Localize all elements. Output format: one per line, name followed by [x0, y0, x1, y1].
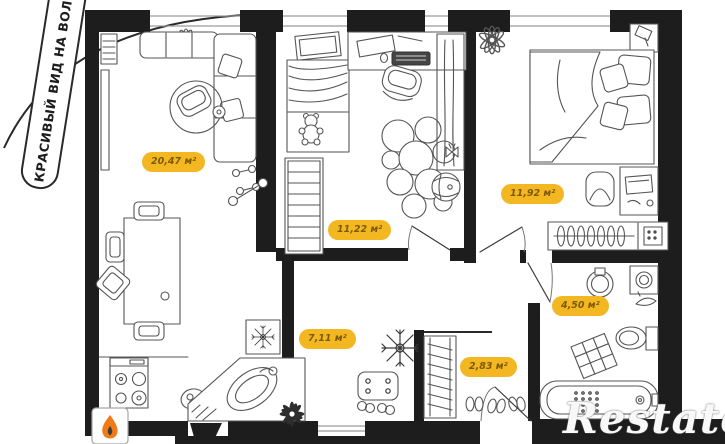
- room-area-badge-living: 20,47 м²: [142, 152, 205, 172]
- bean-bag: [382, 117, 455, 218]
- slippers: [466, 396, 526, 413]
- floor-plan: КРАСИВЫЙ ВИД НА ВОЛГУ 20,47 м² 11,22 м² …: [0, 0, 725, 444]
- houseplant-dark: [280, 402, 304, 426]
- vanity-table: [620, 167, 658, 215]
- toilet: [616, 327, 658, 350]
- nightstand-lamp: [630, 24, 658, 52]
- closet-furniture: [424, 336, 526, 418]
- bedroom-furniture: [478, 24, 668, 250]
- shoes: [358, 402, 395, 415]
- living-room-furniture: [101, 29, 268, 206]
- room-area-badge-bedroom: 11,92 м²: [501, 184, 564, 204]
- room-area-badge-kids: 11,22 м²: [328, 220, 391, 240]
- dining-furniture: [95, 202, 180, 340]
- room-area-badge-hallway: 7,11 м²: [299, 329, 356, 349]
- fridge: [246, 320, 280, 354]
- laundry-basket: [571, 333, 617, 378]
- desk: [348, 32, 466, 70]
- hanger-rail: [424, 336, 456, 418]
- bedroom-door: [480, 227, 525, 252]
- bedroom-wardrobe: [548, 222, 668, 250]
- tv-unit: [101, 34, 117, 170]
- pouf: [358, 372, 398, 400]
- washing-machine: [630, 266, 658, 294]
- room-area-badge-closet: 2,83 м²: [460, 357, 517, 377]
- wall-decor-star: [382, 330, 418, 366]
- vanity-stool: [586, 172, 614, 206]
- gas-icon: [92, 408, 128, 444]
- sink: [587, 268, 613, 297]
- room-area-badge-bathroom: 4,50 м²: [552, 296, 609, 316]
- kids-wardrobe: [285, 158, 323, 254]
- bathroom-door: [528, 263, 552, 302]
- stove: [110, 358, 148, 408]
- hallway-furniture: [358, 330, 419, 415]
- watermark-logo: Restate: [563, 394, 725, 443]
- ball-icon: [432, 173, 460, 201]
- kids-room-door: [408, 226, 450, 250]
- double-bed: [530, 50, 654, 164]
- dining-table: [124, 218, 180, 324]
